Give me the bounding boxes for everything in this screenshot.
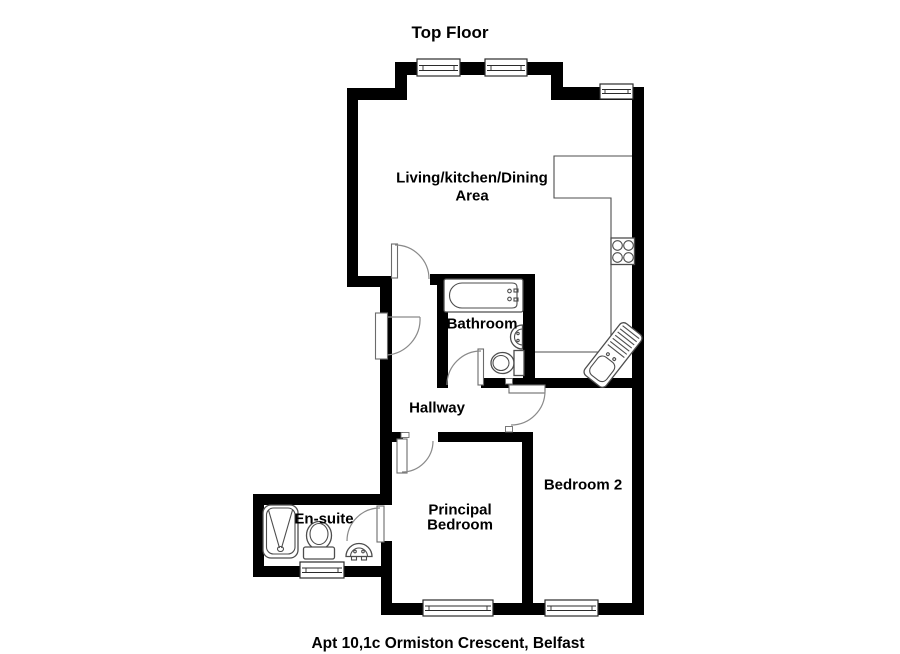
window-bedroom2 bbox=[545, 600, 598, 616]
door-principal-bedroom-icon bbox=[397, 439, 433, 473]
room-label-principal-line2: Bedroom bbox=[427, 517, 493, 534]
room-label-living-line2: Area bbox=[455, 188, 488, 205]
bath-icon bbox=[444, 279, 523, 312]
window-kitchen bbox=[600, 84, 633, 99]
door-bedroom2-icon bbox=[509, 385, 545, 425]
window-principal-bedroom bbox=[423, 600, 493, 616]
door-jamb bbox=[506, 427, 513, 433]
hob-icon bbox=[611, 238, 635, 265]
room-label-bedroom2: Bedroom 2 bbox=[544, 477, 622, 494]
toilet-bathroom-icon bbox=[491, 351, 524, 376]
plan-caption: Apt 10,1c Ormiston Crescent, Belfast bbox=[311, 635, 584, 653]
door-jamb bbox=[506, 379, 513, 385]
washbasin-ensuite-icon bbox=[346, 544, 372, 561]
plan-title: Top Floor bbox=[411, 23, 488, 43]
window-ensuite bbox=[300, 562, 344, 578]
door-entrance-icon bbox=[376, 313, 421, 359]
door-living-to-hallway-icon bbox=[392, 244, 430, 279]
door-jamb bbox=[401, 433, 409, 438]
room-label-ensuite: En-suite bbox=[294, 511, 353, 528]
window-living-left bbox=[417, 59, 460, 76]
room-label-hallway: Hallway bbox=[409, 400, 465, 417]
room-label-living-line1: Living/kitchen/Dining bbox=[396, 170, 548, 187]
floorplan: Top Floor Living/kitchen/Dining Area Bat… bbox=[0, 0, 900, 654]
shower-icon bbox=[263, 505, 298, 558]
window-living-right bbox=[485, 59, 527, 76]
room-label-bathroom: Bathroom bbox=[447, 316, 518, 333]
door-bathroom-icon bbox=[447, 349, 484, 385]
